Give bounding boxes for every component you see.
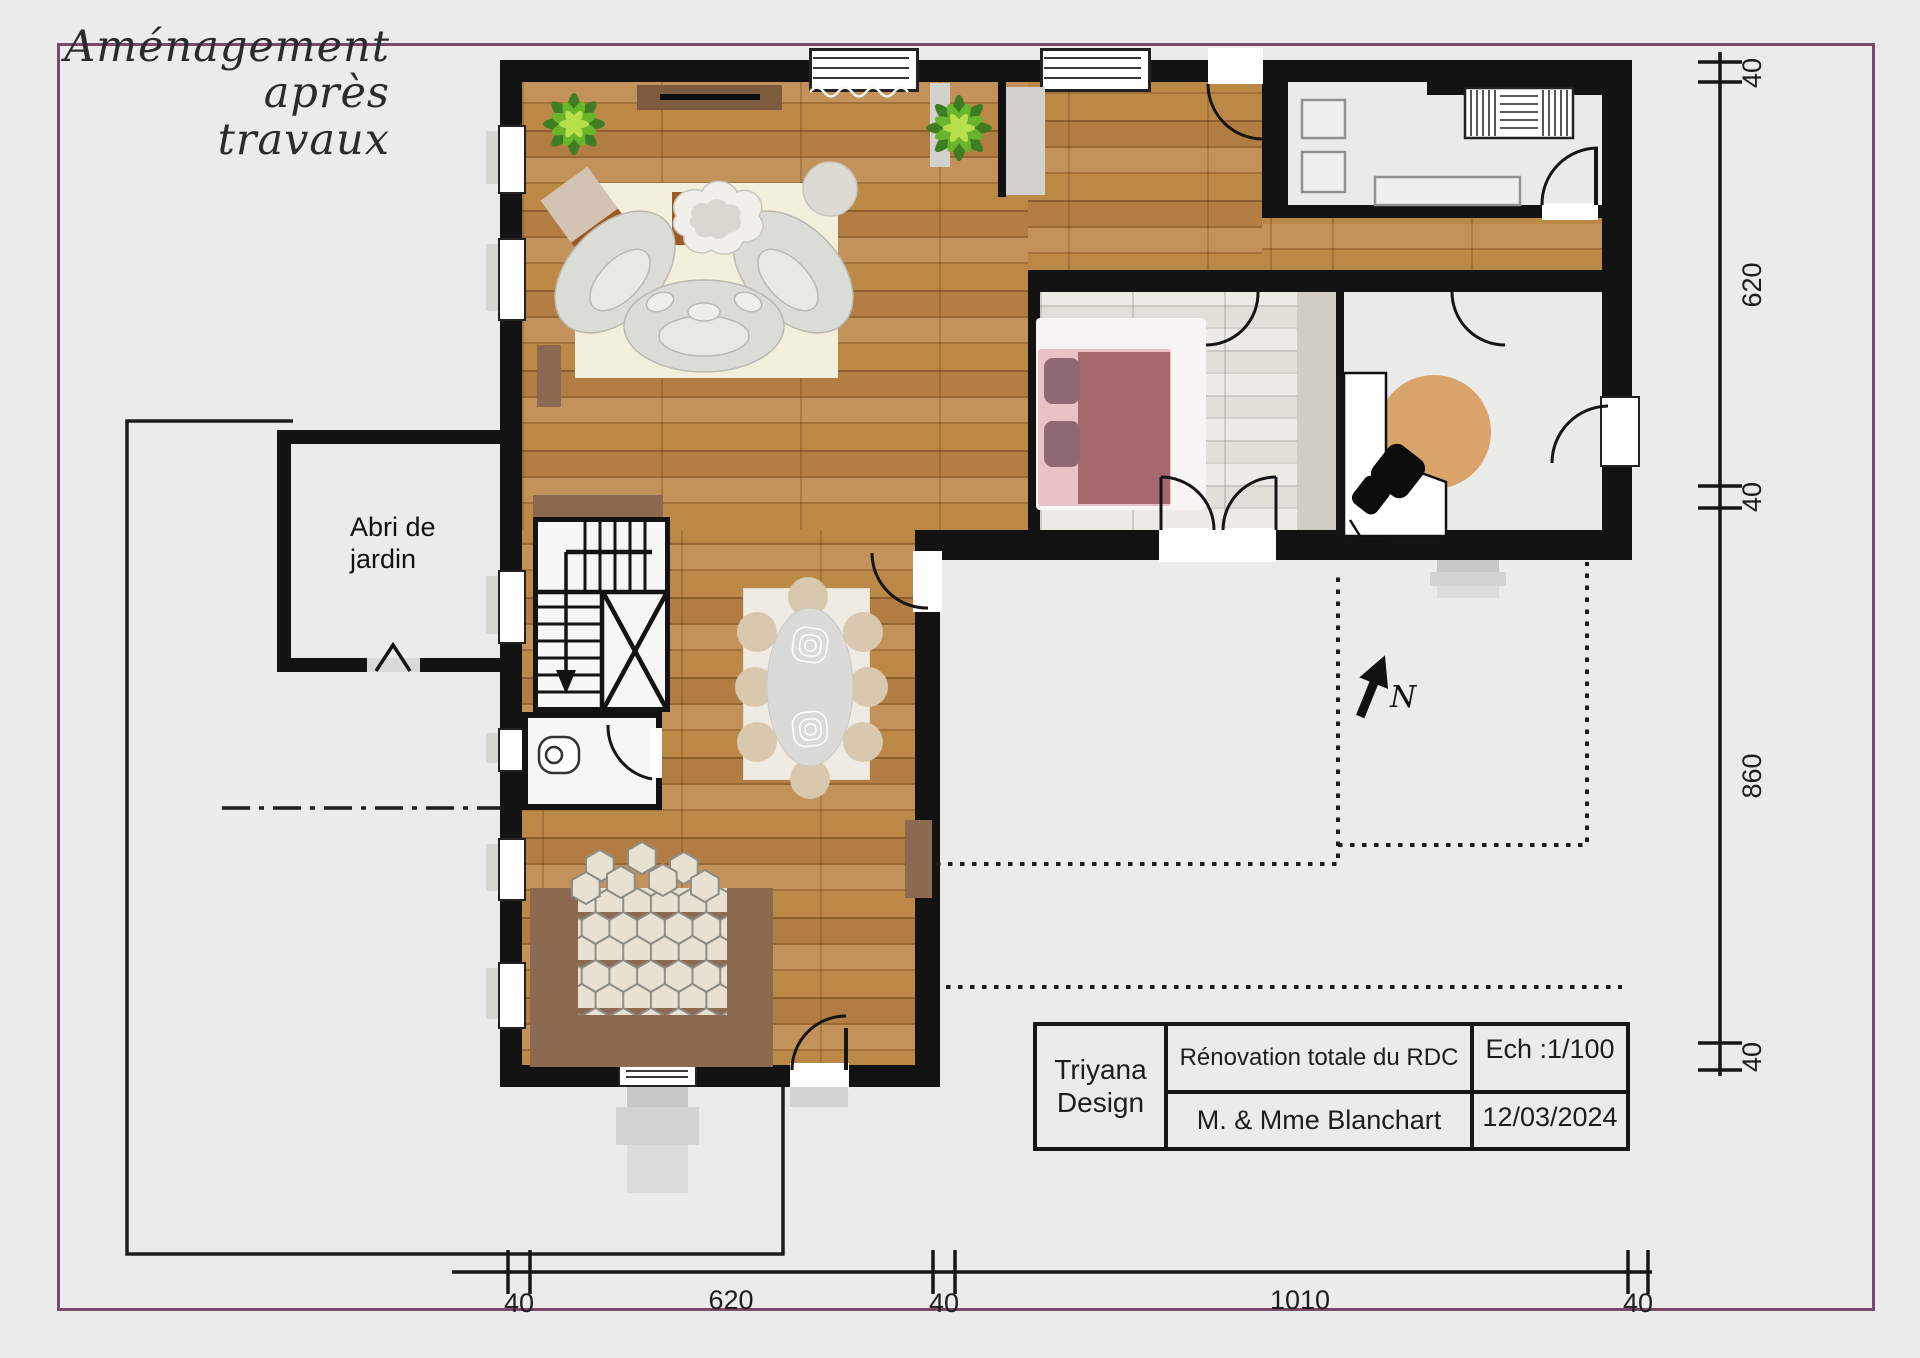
door-arcs: [376, 84, 1608, 1070]
title-block-date: 12/03/2024: [1474, 1094, 1626, 1147]
dim-right-860: 860: [1737, 731, 1767, 821]
pouf: [803, 162, 857, 216]
dim-right-40b: 40: [1737, 452, 1767, 542]
title-block-company: Triyana Design: [1037, 1026, 1168, 1147]
laundry-door-arc: [1542, 148, 1598, 205]
title-block-scale: Ech :1/100: [1474, 1026, 1626, 1094]
company-line1: Triyana: [1054, 1054, 1146, 1086]
plant-icon: [543, 93, 605, 155]
title-block-project: Rénovation totale du RDC: [1168, 1026, 1470, 1094]
dining-table: [767, 608, 853, 766]
dim-bottom-40a: 40: [474, 1288, 564, 1318]
curtain-icon: [810, 88, 908, 97]
wc-door-arc: [608, 725, 652, 779]
office-garden-door-arc: [1552, 406, 1608, 463]
property-boundary: [127, 421, 783, 1254]
bedroom-door-arc: [1206, 292, 1258, 345]
north-label: N: [1390, 680, 1416, 715]
office-door-arc: [1452, 292, 1505, 345]
title-block-client: M. & Mme Blanchart: [1168, 1094, 1470, 1147]
shed-door-chevron: [376, 645, 410, 671]
french-door-arc-left: [1161, 477, 1214, 530]
french-door-arc-right: [1223, 477, 1276, 530]
dining-terrace-door-arc: [872, 553, 928, 608]
drying-rack: [1465, 88, 1573, 138]
plant-icon: [926, 95, 992, 161]
staircase: [535, 520, 668, 710]
dim-right-40a: 40: [1737, 28, 1767, 118]
company-line2: Design: [1057, 1087, 1144, 1119]
dim-bottom-620: 620: [686, 1285, 776, 1315]
floor-plan-page: Aménagement après travaux: [0, 0, 1920, 1358]
dim-right-620: 620: [1737, 240, 1767, 330]
dim-bottom-1010: 1010: [1255, 1285, 1345, 1315]
plan-linework: [0, 0, 1920, 1358]
toilet: [539, 737, 579, 773]
dim-right-40c: 40: [1737, 1012, 1767, 1102]
entrance-door-arc: [1208, 84, 1263, 139]
dotted-outline: [936, 562, 1622, 987]
title-block: Triyana Design Rénovation totale du RDC …: [1033, 1022, 1630, 1151]
kitchen-door-arc: [792, 1016, 846, 1070]
dim-bottom-40c: 40: [1593, 1288, 1683, 1318]
kitchen-hex-floor: [572, 842, 727, 1015]
dim-bottom-40b: 40: [899, 1288, 989, 1318]
